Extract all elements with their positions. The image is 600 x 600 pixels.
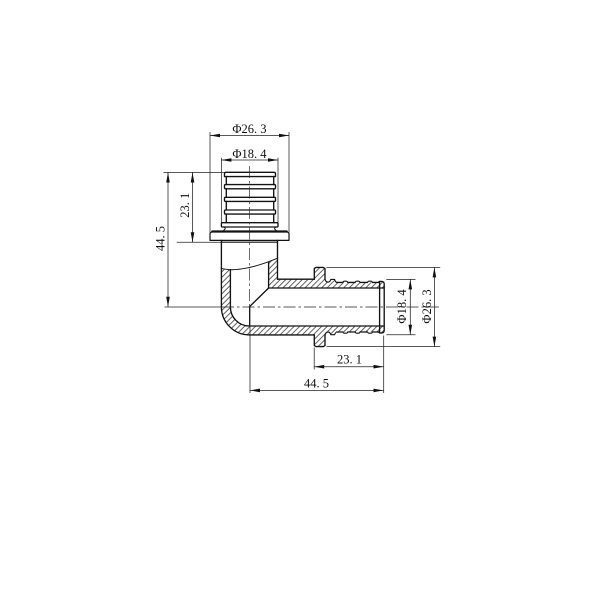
svg-text:44. 5: 44. 5 — [304, 376, 329, 390]
svg-text:Φ26. 3: Φ26. 3 — [420, 289, 434, 323]
svg-text:23. 1: 23. 1 — [337, 353, 362, 367]
svg-text:Φ18. 4: Φ18. 4 — [232, 147, 267, 161]
svg-text:Φ18. 4: Φ18. 4 — [395, 289, 409, 324]
svg-text:23. 1: 23. 1 — [178, 193, 192, 218]
svg-text:Φ26. 3: Φ26. 3 — [232, 122, 266, 136]
svg-text:44. 5: 44. 5 — [154, 226, 168, 251]
